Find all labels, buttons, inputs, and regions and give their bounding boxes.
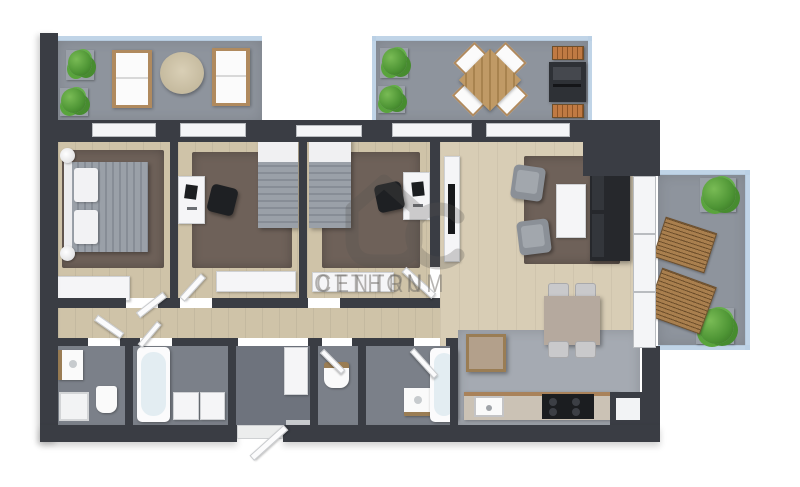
floorplan-canvas: OTTHON CENTRUM bbox=[0, 0, 800, 487]
window bbox=[180, 123, 246, 137]
armchair bbox=[516, 218, 552, 256]
balcony-window-pane bbox=[633, 292, 656, 348]
dining-table bbox=[544, 296, 600, 345]
single-bed bbox=[309, 138, 351, 228]
glass-railing bbox=[588, 36, 592, 122]
wall-segment bbox=[299, 142, 307, 298]
outdoor-sofa bbox=[112, 50, 152, 108]
double-bed bbox=[64, 162, 148, 252]
wall-segment bbox=[212, 298, 308, 308]
outer-wall-left bbox=[40, 33, 58, 442]
bedside-lamp bbox=[60, 148, 75, 163]
kitchen-sink bbox=[474, 396, 504, 417]
glass-railing bbox=[658, 170, 750, 175]
coffee-table bbox=[556, 184, 586, 238]
grill-bench bbox=[552, 46, 584, 60]
wall-segment bbox=[50, 338, 88, 346]
armchair bbox=[510, 164, 546, 202]
sideboard bbox=[216, 271, 296, 292]
glass-railing bbox=[372, 36, 376, 122]
plant-icon bbox=[379, 86, 403, 110]
outer-wall-top-right-block bbox=[583, 120, 660, 176]
outer-wall-bottom bbox=[40, 425, 237, 442]
cooktop bbox=[542, 394, 594, 419]
entry-wardrobe bbox=[284, 347, 308, 395]
desk-chair bbox=[373, 180, 405, 213]
outer-wall-bottom bbox=[283, 425, 660, 442]
wall-segment bbox=[125, 338, 133, 425]
toilet bbox=[96, 386, 117, 413]
dining-chair bbox=[548, 341, 569, 358]
wall-segment bbox=[450, 338, 458, 425]
tv bbox=[448, 184, 455, 234]
wall-segment bbox=[50, 298, 126, 308]
wall-segment bbox=[228, 338, 236, 425]
balcony-window-pane bbox=[633, 234, 656, 292]
bedside-lamp bbox=[60, 246, 75, 261]
sofa bbox=[590, 164, 630, 261]
outdoor-round-table bbox=[160, 52, 204, 94]
wall-segment bbox=[358, 338, 366, 425]
kitchen-island-cabinet bbox=[466, 334, 506, 372]
desk bbox=[178, 176, 205, 224]
utility-shaft-inner bbox=[616, 398, 640, 420]
bbq-grill bbox=[549, 62, 586, 102]
plant-icon bbox=[61, 88, 86, 113]
glass-railing bbox=[58, 36, 262, 41]
glass-railing bbox=[658, 345, 750, 350]
wall-segment bbox=[430, 142, 440, 267]
shower-tray bbox=[59, 392, 89, 421]
window bbox=[92, 123, 156, 137]
desk bbox=[403, 172, 430, 220]
balcony-window-pane bbox=[633, 176, 656, 234]
outdoor-sofa bbox=[212, 48, 250, 106]
window bbox=[392, 123, 472, 137]
glass-railing bbox=[745, 170, 750, 350]
wall-segment bbox=[170, 142, 178, 298]
dining-chair bbox=[575, 341, 596, 358]
grill-bench bbox=[552, 104, 584, 118]
dryer bbox=[200, 392, 225, 420]
window bbox=[296, 125, 362, 137]
window bbox=[486, 123, 570, 137]
wall-segment bbox=[310, 338, 318, 425]
washing-machine bbox=[173, 392, 199, 420]
washbasin bbox=[58, 350, 83, 380]
washbasin bbox=[404, 388, 432, 416]
wall-segment bbox=[340, 298, 440, 308]
sideboard bbox=[312, 272, 394, 292]
single-bed bbox=[258, 138, 298, 228]
plant-icon bbox=[382, 48, 407, 75]
plant-icon bbox=[702, 177, 736, 211]
bathtub bbox=[137, 347, 170, 422]
plant-icon bbox=[68, 50, 92, 76]
